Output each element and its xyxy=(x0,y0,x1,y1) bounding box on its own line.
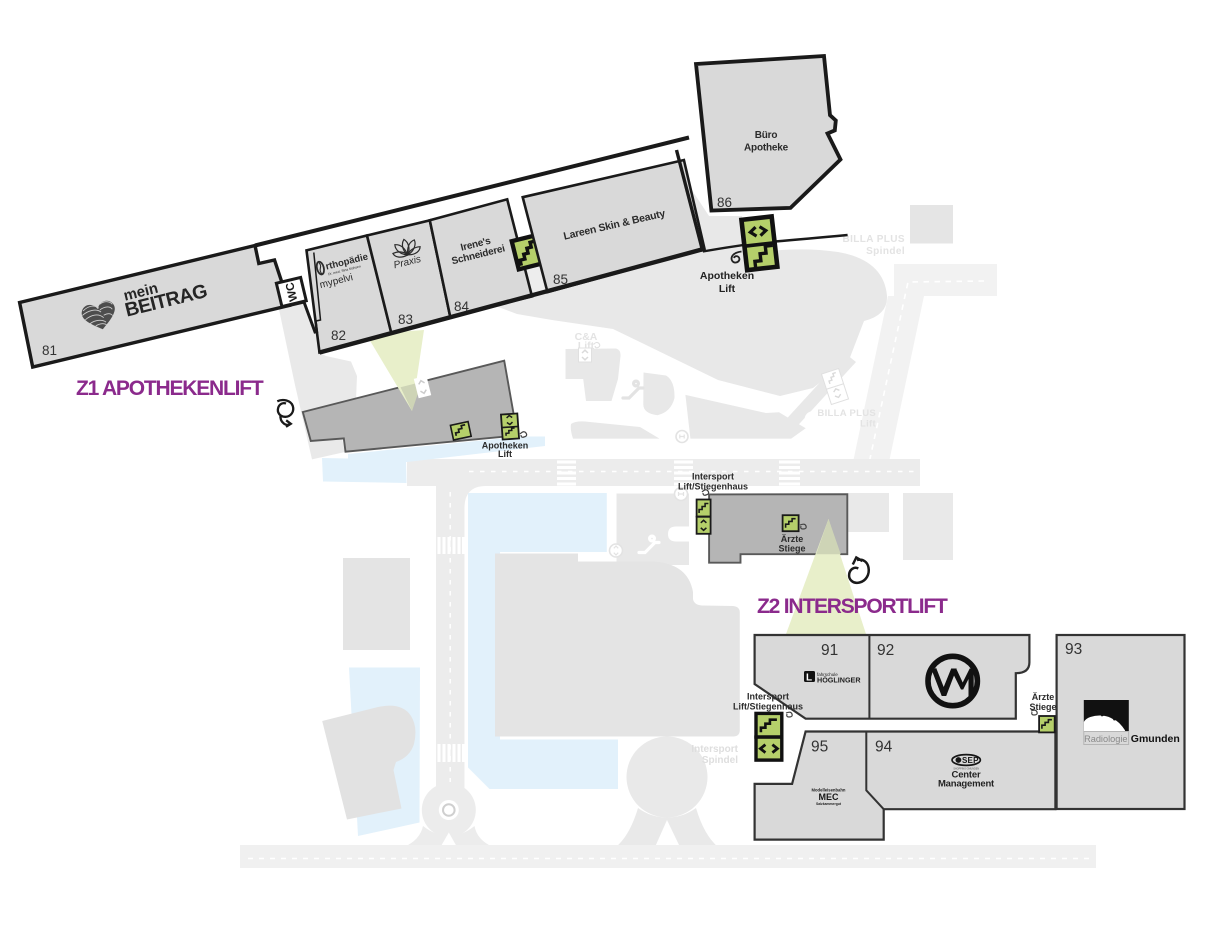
svg-text:82: 82 xyxy=(331,328,346,343)
svg-text:81: 81 xyxy=(42,343,57,358)
svg-text:Salzkammergut: Salzkammergut xyxy=(816,802,842,806)
svg-text:Ärzte: Ärzte xyxy=(781,534,804,544)
svg-text:Intersport: Intersport xyxy=(692,472,734,482)
svg-text:Lift/Stiegenhaus: Lift/Stiegenhaus xyxy=(733,702,803,712)
svg-text:Lift: Lift xyxy=(860,419,877,430)
svg-text:Büro: Büro xyxy=(755,130,778,141)
svg-text:BILLA PLUS: BILLA PLUS xyxy=(817,408,876,419)
svg-text:Z2 INTERSPORTLIFT: Z2 INTERSPORTLIFT xyxy=(757,595,948,618)
svg-text:Gmunden: Gmunden xyxy=(1131,733,1180,745)
svg-text:93: 93 xyxy=(1065,641,1082,658)
svg-text:Intersport: Intersport xyxy=(691,744,738,755)
svg-text:Stiege: Stiege xyxy=(778,544,805,554)
svg-text:94: 94 xyxy=(875,739,893,756)
svg-text:Spindel: Spindel xyxy=(866,246,905,257)
svg-text:MEC: MEC xyxy=(819,792,840,802)
svg-text:L: L xyxy=(806,673,812,684)
svg-text:HÖGLINGER: HÖGLINGER xyxy=(817,676,861,685)
svg-text:91: 91 xyxy=(821,642,838,659)
svg-text:SEP: SEP xyxy=(962,756,979,765)
svg-text:Apotheke: Apotheke xyxy=(744,143,789,154)
svg-text:Intersport: Intersport xyxy=(747,692,789,702)
svg-text:BILLA PLUS: BILLA PLUS xyxy=(842,234,905,245)
svg-text:95: 95 xyxy=(811,739,828,756)
svg-text:Management: Management xyxy=(938,779,995,790)
svg-text:86: 86 xyxy=(717,195,732,210)
svg-text:Z1 APOTHEKENLIFT: Z1 APOTHEKENLIFT xyxy=(76,377,264,400)
svg-text:Apotheken: Apotheken xyxy=(700,270,754,282)
svg-text:Lift: Lift xyxy=(719,283,736,295)
svg-text:Radiologie: Radiologie xyxy=(1084,734,1127,744)
svg-text:83: 83 xyxy=(398,312,413,327)
svg-text:Lift/Stiegenhaus: Lift/Stiegenhaus xyxy=(678,482,748,492)
svg-text:Ärzte: Ärzte xyxy=(1032,692,1055,702)
svg-text:Lift: Lift xyxy=(498,449,512,459)
svg-text:92: 92 xyxy=(877,642,894,659)
svg-text:Spindel: Spindel xyxy=(702,755,738,766)
